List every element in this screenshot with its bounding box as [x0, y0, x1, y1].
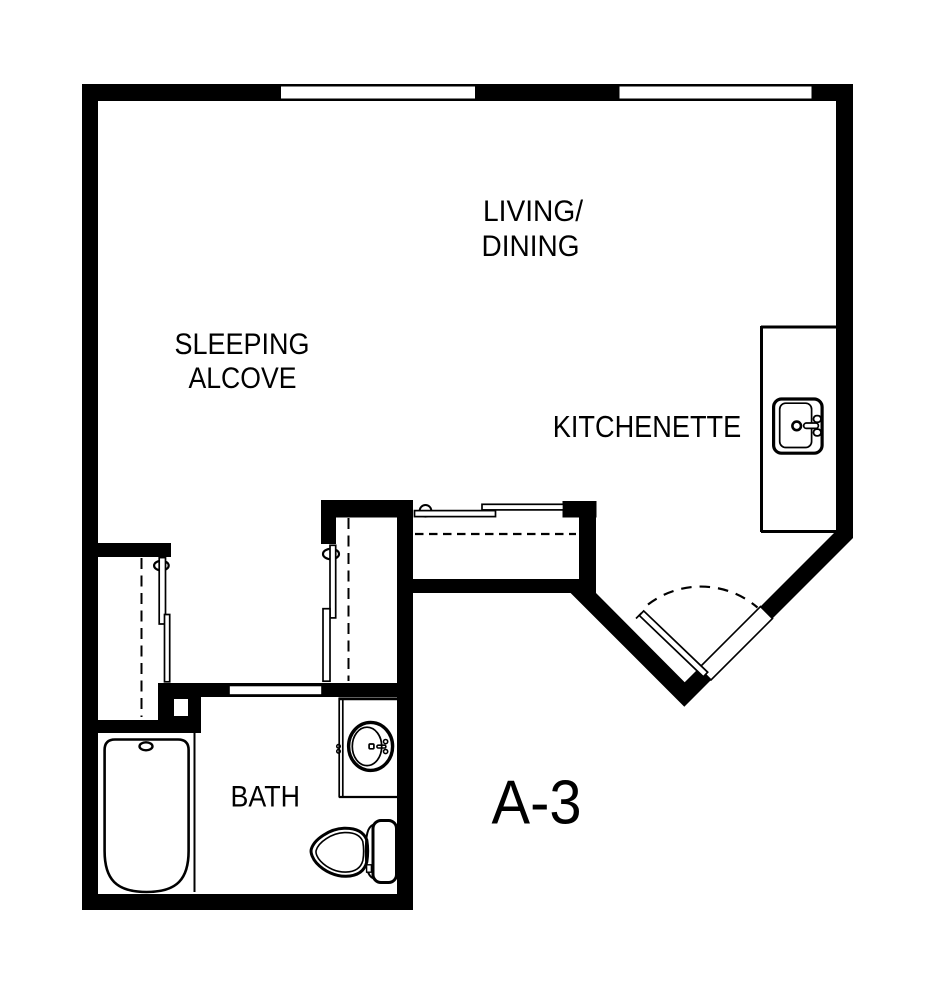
- svg-text:KITCHENETTE: KITCHENETTE: [553, 409, 742, 444]
- svg-text:DINING: DINING: [482, 230, 580, 263]
- svg-text:SLEEPING: SLEEPING: [175, 328, 310, 361]
- svg-text:BATH: BATH: [231, 781, 301, 814]
- svg-text:LIVING/: LIVING/: [483, 195, 584, 228]
- svg-text:ALCOVE: ALCOVE: [189, 362, 297, 395]
- svg-text:A-3: A-3: [492, 768, 582, 838]
